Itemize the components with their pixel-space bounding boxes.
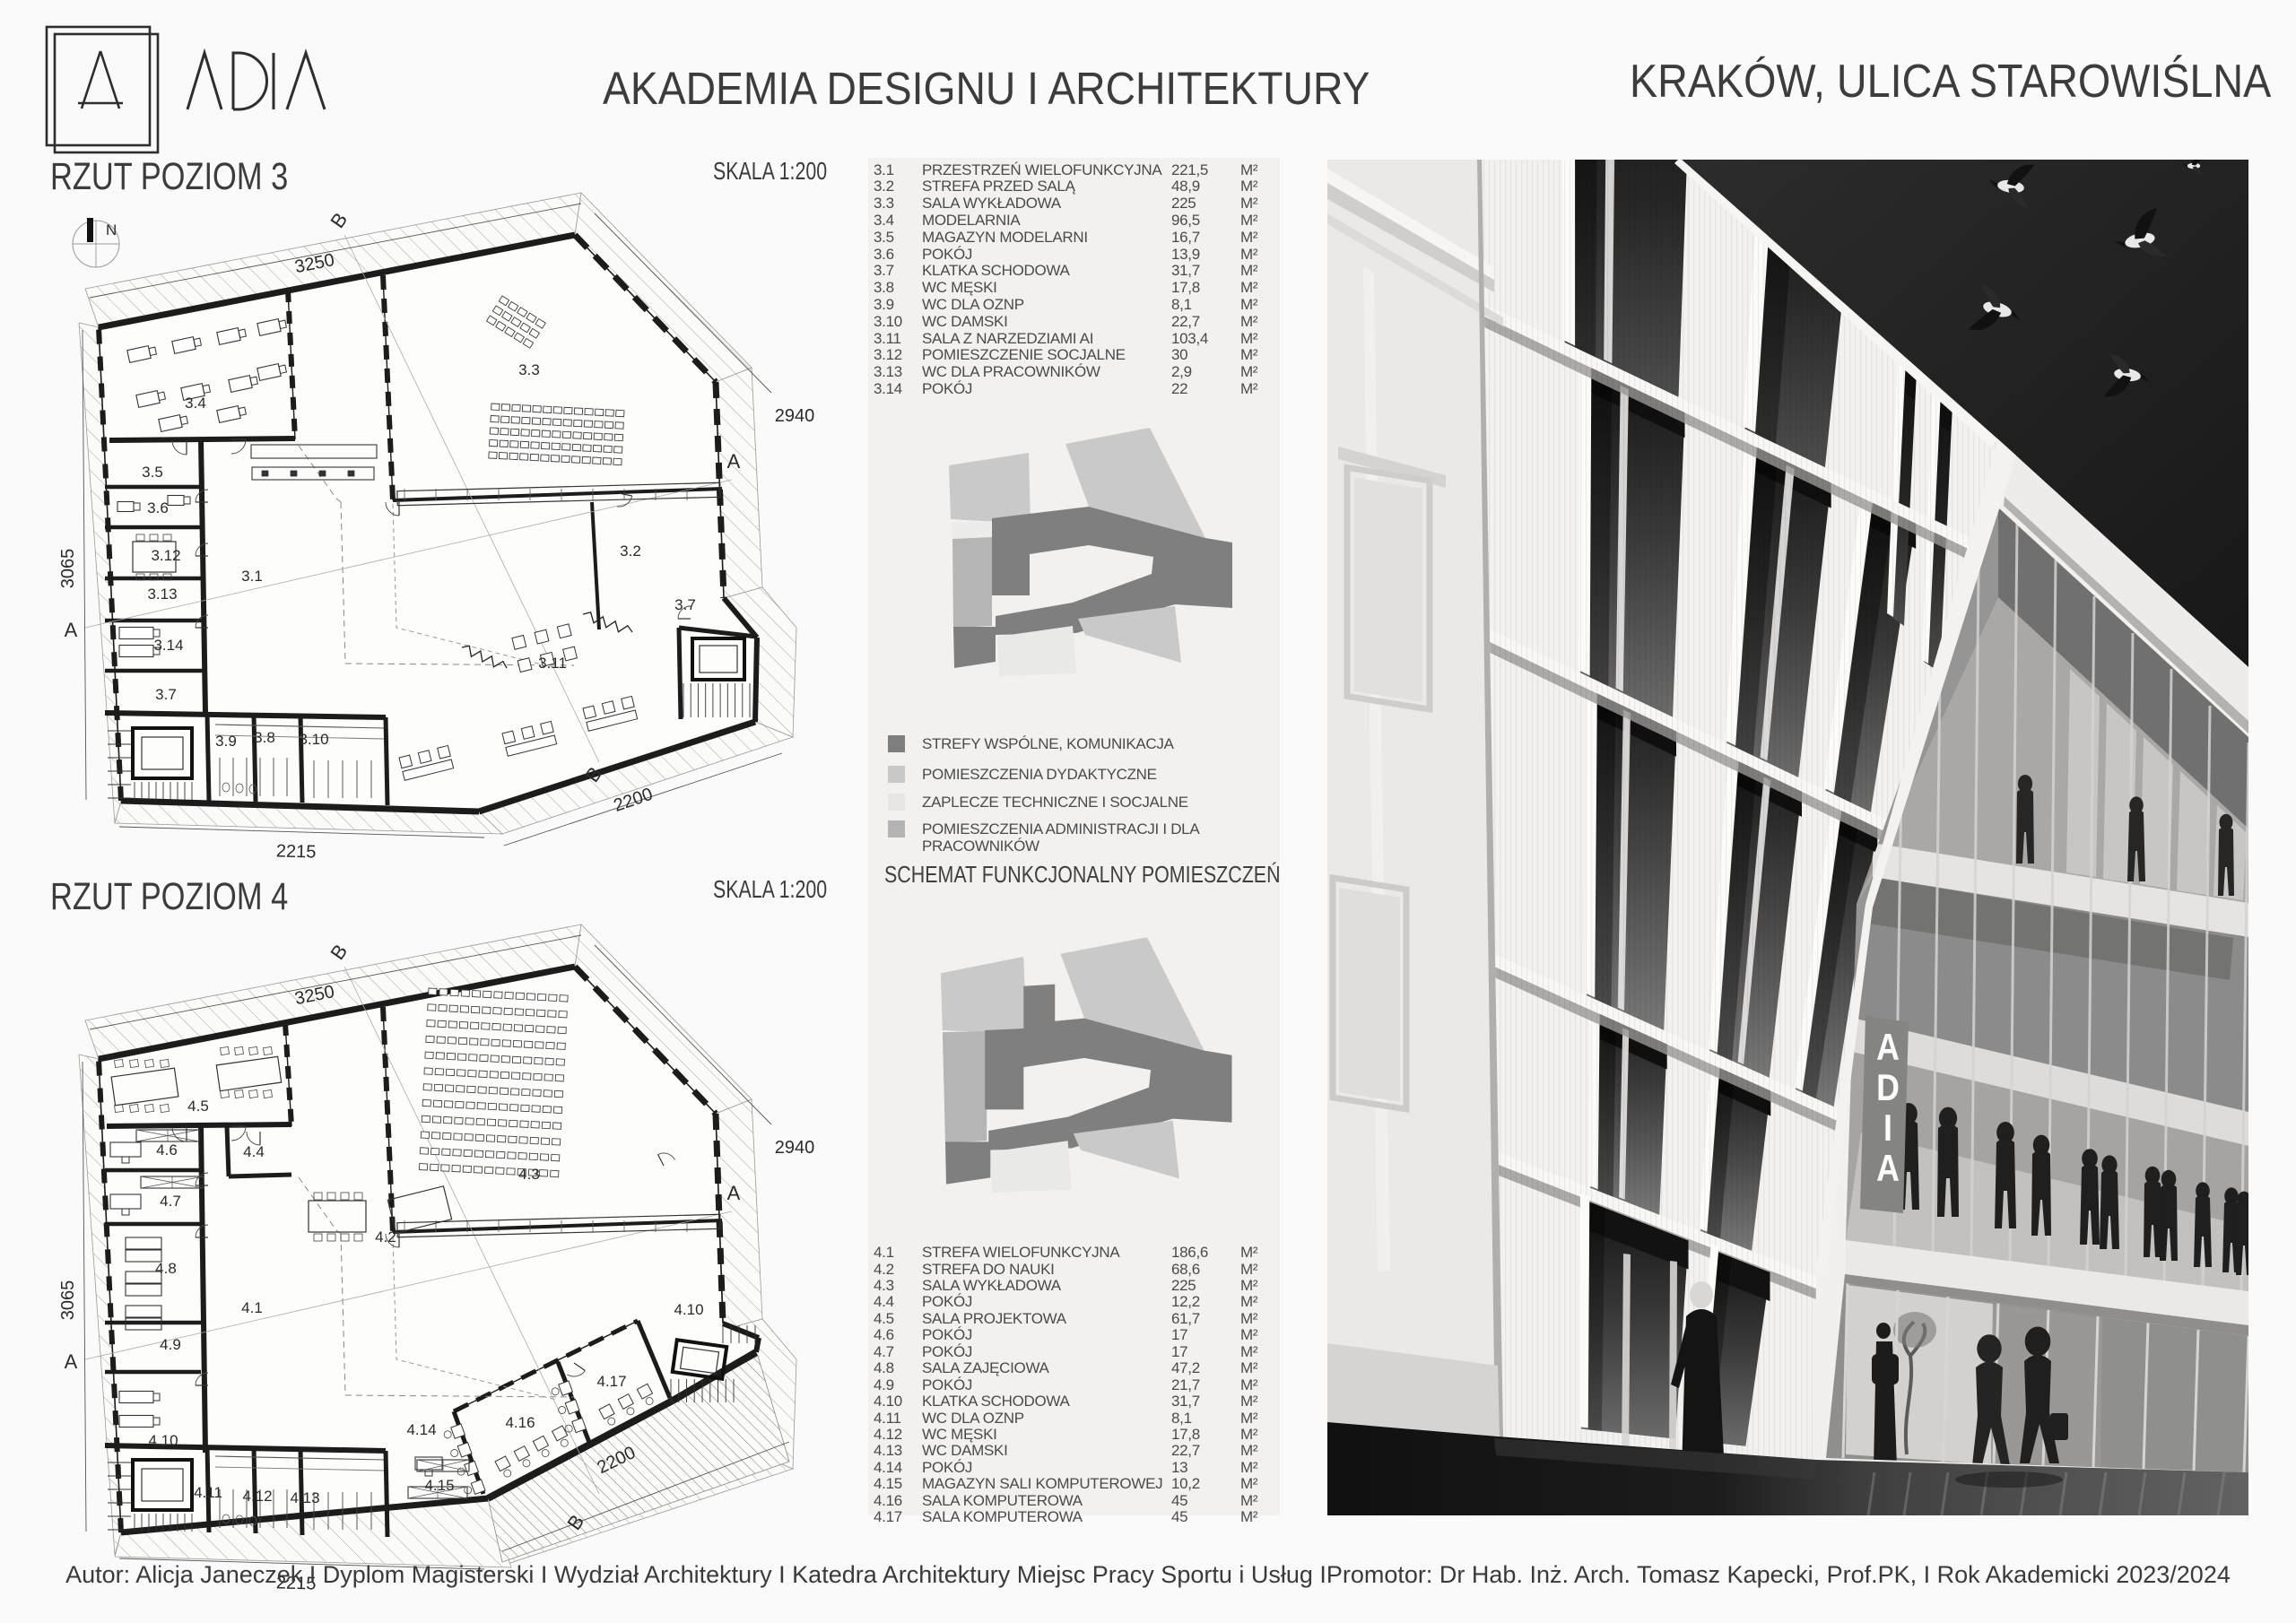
svg-text:A: A bbox=[65, 1350, 78, 1373]
svg-text:4.5: 4.5 bbox=[187, 1098, 209, 1115]
svg-text:3.9: 3.9 bbox=[215, 733, 237, 750]
svg-text:3.7: 3.7 bbox=[155, 686, 177, 703]
svg-text:2940: 2940 bbox=[775, 406, 815, 426]
svg-text:A: A bbox=[727, 450, 741, 473]
svg-text:3.13: 3.13 bbox=[147, 586, 177, 603]
svg-text:A: A bbox=[727, 1182, 741, 1204]
svg-text:4.9: 4.9 bbox=[160, 1336, 181, 1353]
svg-text:N: N bbox=[106, 221, 117, 239]
svg-text:4.2: 4.2 bbox=[375, 1228, 396, 1245]
svg-text:D: D bbox=[1876, 1067, 1900, 1108]
svg-text:3.5: 3.5 bbox=[142, 464, 163, 481]
svg-text:3.7: 3.7 bbox=[674, 596, 696, 613]
svg-text:2940: 2940 bbox=[775, 1138, 815, 1158]
svg-text:4.1: 4.1 bbox=[241, 1299, 263, 1316]
svg-text:4.14: 4.14 bbox=[406, 1421, 436, 1438]
svg-text:3.6: 3.6 bbox=[147, 499, 169, 516]
svg-text:4.17: 4.17 bbox=[596, 1373, 626, 1390]
svg-text:3.3: 3.3 bbox=[518, 361, 540, 378]
svg-text:3.14: 3.14 bbox=[153, 637, 183, 654]
svg-text:4.8: 4.8 bbox=[155, 1260, 177, 1277]
svg-text:3.2: 3.2 bbox=[620, 542, 641, 560]
svg-text:3.8: 3.8 bbox=[254, 729, 275, 746]
svg-text:4.7: 4.7 bbox=[160, 1193, 181, 1210]
svg-text:3.12: 3.12 bbox=[151, 547, 180, 564]
svg-text:I: I bbox=[1883, 1107, 1892, 1149]
svg-text:2215: 2215 bbox=[276, 841, 317, 862]
svg-text:4.3: 4.3 bbox=[518, 1166, 540, 1183]
svg-text:A: A bbox=[1876, 1027, 1900, 1068]
svg-text:A: A bbox=[65, 619, 78, 641]
svg-text:4.4: 4.4 bbox=[243, 1143, 265, 1160]
svg-text:3.10: 3.10 bbox=[299, 731, 328, 748]
svg-text:3065: 3065 bbox=[58, 1280, 78, 1321]
svg-text:4.10: 4.10 bbox=[148, 1432, 178, 1449]
svg-text:3065: 3065 bbox=[58, 549, 78, 589]
svg-text:4.16: 4.16 bbox=[505, 1414, 535, 1431]
svg-text:A: A bbox=[1876, 1148, 1900, 1189]
svg-text:3.11: 3.11 bbox=[538, 655, 567, 672]
svg-text:3.4: 3.4 bbox=[185, 395, 206, 412]
svg-text:4.15: 4.15 bbox=[424, 1477, 454, 1494]
svg-text:4.13: 4.13 bbox=[290, 1489, 319, 1506]
svg-text:B: B bbox=[326, 209, 352, 232]
svg-text:4.12: 4.12 bbox=[242, 1488, 272, 1505]
svg-text:4.6: 4.6 bbox=[156, 1141, 178, 1159]
svg-text:4.11: 4.11 bbox=[194, 1484, 222, 1501]
svg-text:4.10: 4.10 bbox=[674, 1301, 703, 1318]
svg-text:B: B bbox=[326, 941, 352, 964]
svg-text:3.1: 3.1 bbox=[241, 568, 263, 585]
